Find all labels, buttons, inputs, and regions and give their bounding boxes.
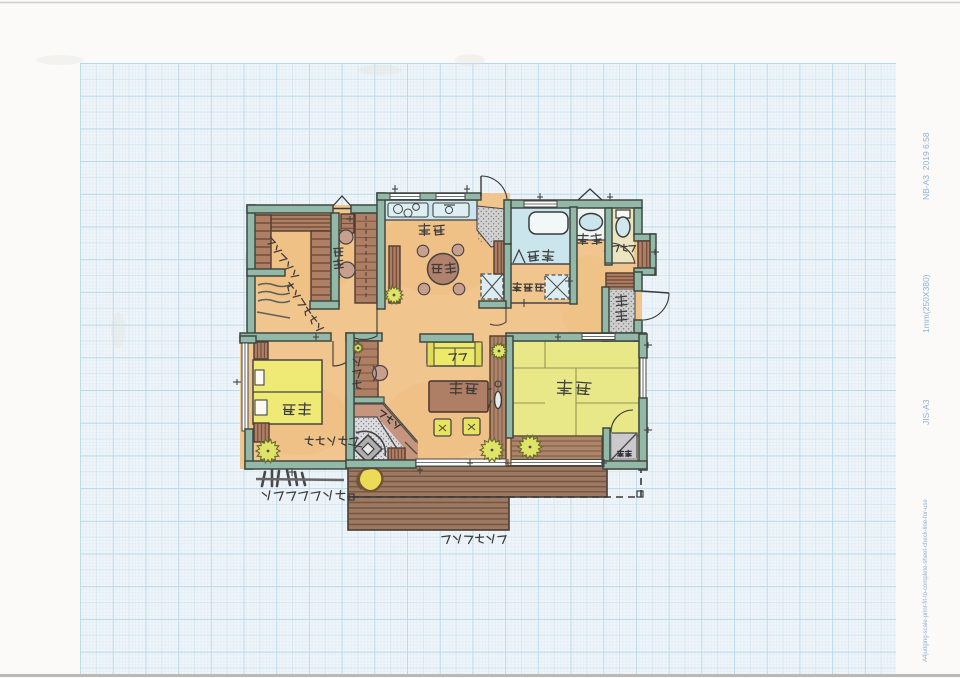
svg-text:1mm(250X380): 1mm(250X380): [921, 274, 931, 333]
svg-text:JIS-A3: JIS-A3: [921, 399, 931, 425]
svg-text:A4judging-scale-print-fit-to-c: A4judging-scale-print-fit-to-complete-sh…: [923, 499, 929, 662]
svg-text:NB-A3 2019 6:58: NB-A3 2019 6:58: [921, 132, 931, 200]
